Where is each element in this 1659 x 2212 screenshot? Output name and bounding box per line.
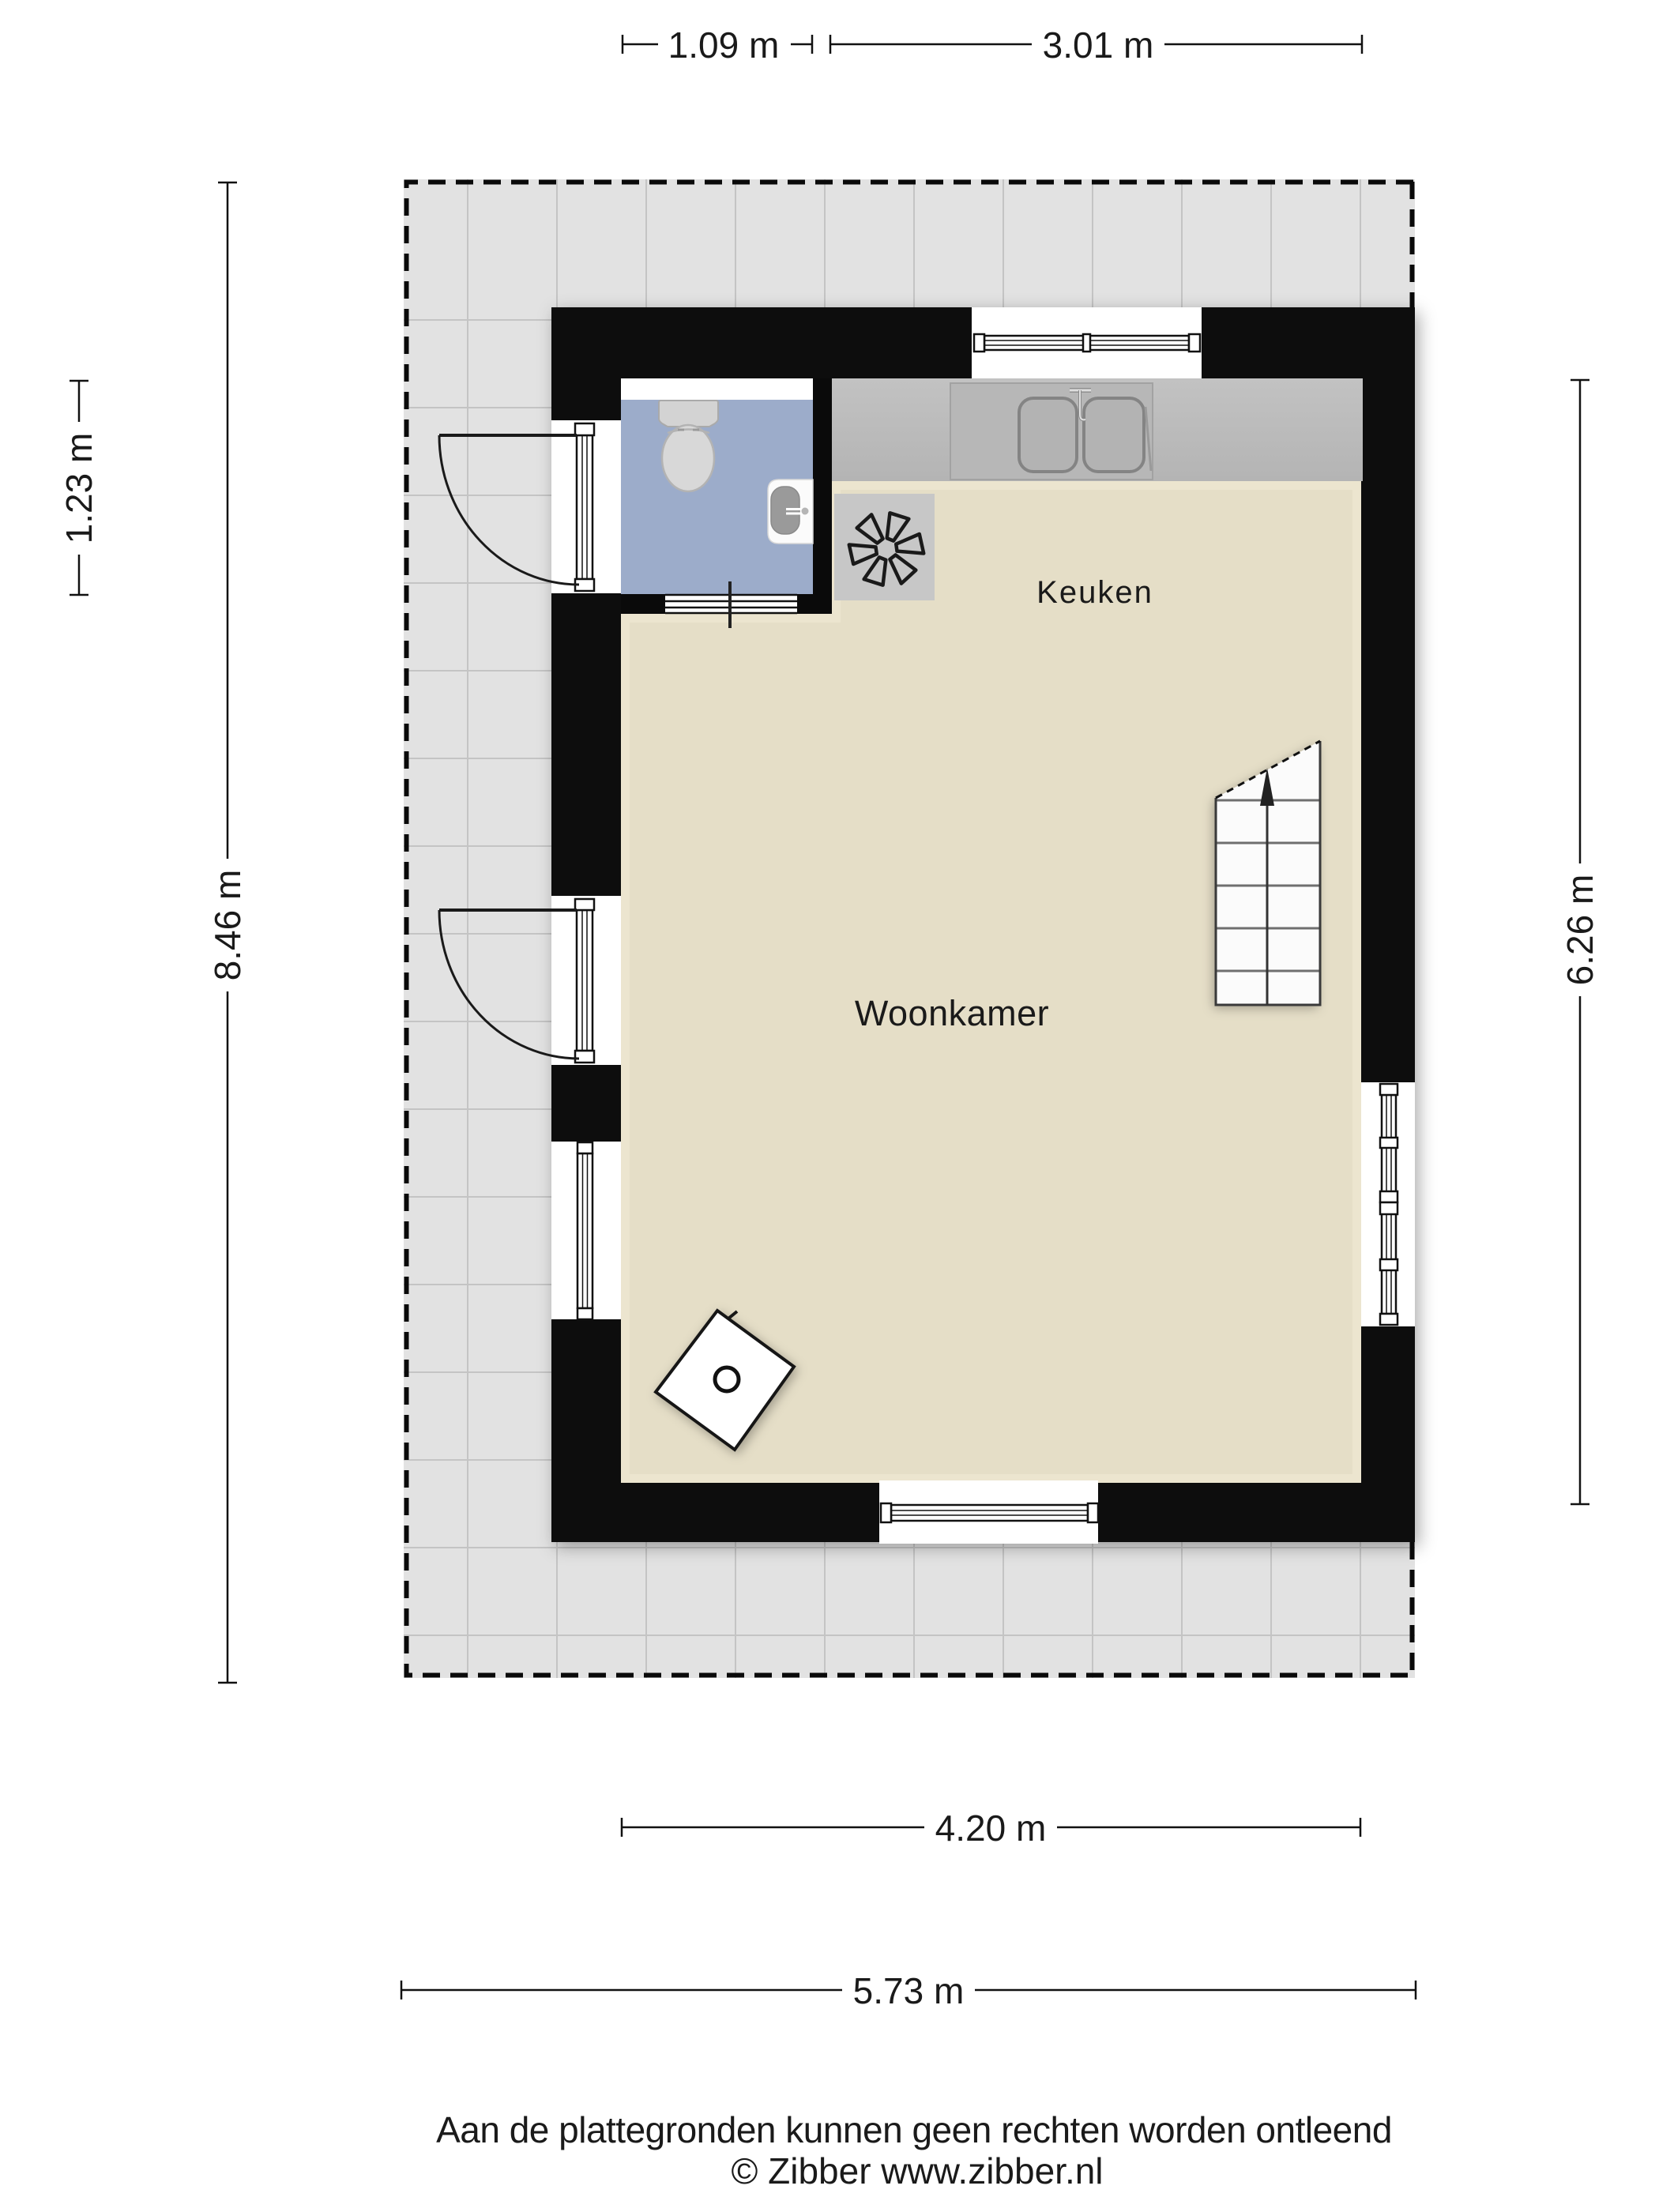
svg-text:© Zibber www.zibber.nl: © Zibber www.zibber.nl [731,2150,1103,2191]
svg-text:Aan de plattegronden kunnen ge: Aan de plattegronden kunnen geen rechten… [436,2109,1392,2150]
svg-text:6.26 m: 6.26 m [1559,875,1601,986]
svg-text:4.20 m: 4.20 m [935,1808,1047,1849]
svg-text:1.23 m: 1.23 m [58,433,100,544]
svg-text:5.73 m: 5.73 m [853,1970,965,2011]
svg-text:3.01 m: 3.01 m [1043,24,1154,66]
svg-text:Woonkamer: Woonkamer [855,993,1049,1033]
svg-text:1.09 m: 1.09 m [668,24,780,66]
svg-text:8.46 m: 8.46 m [207,870,248,981]
svg-text:Keuken: Keuken [1036,575,1153,610]
